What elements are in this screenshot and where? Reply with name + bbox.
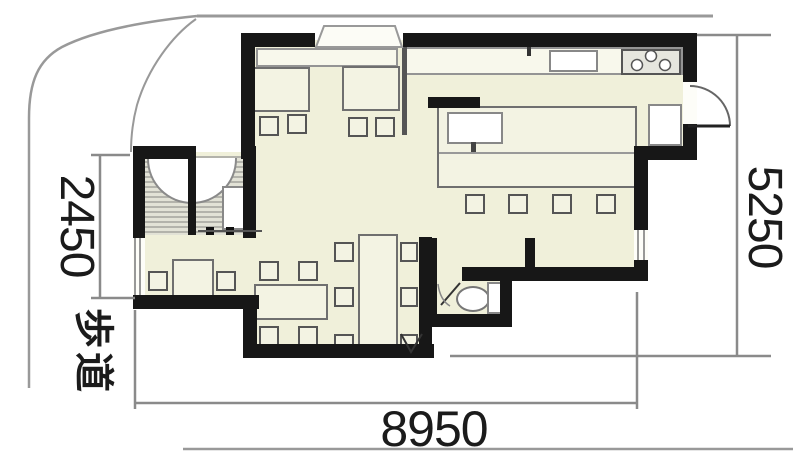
dimension-lines xyxy=(91,35,771,409)
bay-window xyxy=(316,26,402,47)
floor-plan-canvas: 8950 2450 5250 歩道 xyxy=(0,0,793,456)
plan-line-work xyxy=(0,0,793,456)
entry-door-arc-icon xyxy=(690,86,730,126)
table-end-v-mark xyxy=(401,334,422,352)
toilet-door-leaf xyxy=(441,283,460,305)
boundary-inner-curve xyxy=(131,19,196,152)
stove-burners-icon xyxy=(632,51,671,71)
window-lines xyxy=(135,230,644,295)
boundary-curve-left xyxy=(29,16,197,388)
